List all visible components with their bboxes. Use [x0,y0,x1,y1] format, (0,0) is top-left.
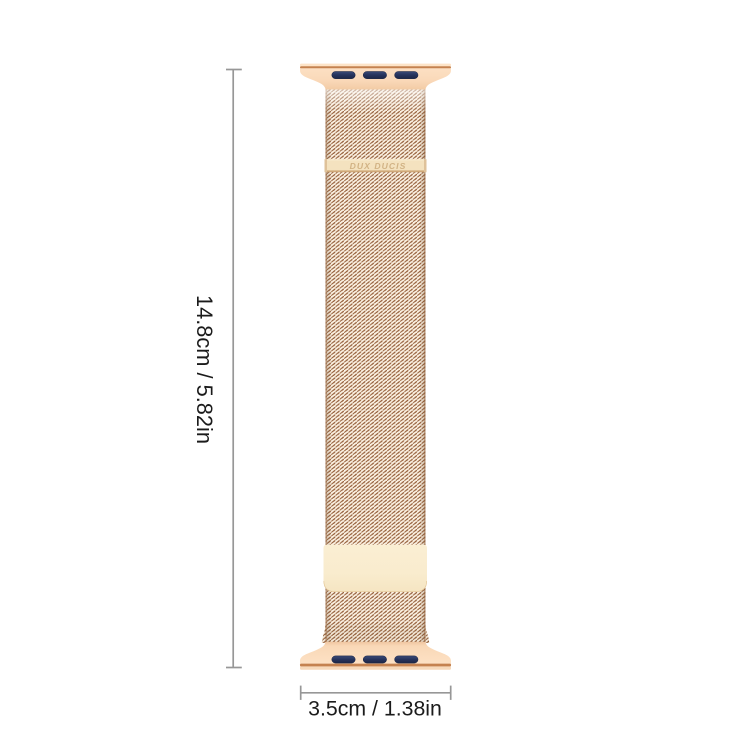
svg-text:3.5cm / 1.38in: 3.5cm / 1.38in [308,697,442,721]
svg-text:DUX DUCIS: DUX DUCIS [350,161,407,171]
svg-text:14.8cm / 5.82in: 14.8cm / 5.82in [192,295,217,444]
